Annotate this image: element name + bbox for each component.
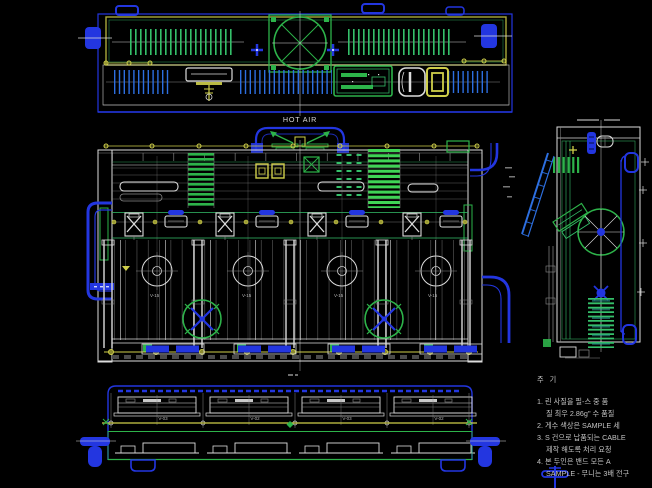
inlet-conveyor — [522, 153, 554, 237]
bay-column — [460, 240, 472, 348]
belt-section — [553, 203, 593, 239]
base-pad — [207, 443, 291, 453]
drive-unit — [587, 132, 613, 154]
note-line: 제작 해도록 처리 요청 — [537, 444, 649, 456]
flow-arrow-icon — [122, 266, 130, 271]
upper-chamber — [112, 149, 468, 208]
circulation-fan-icon — [365, 300, 403, 338]
notes-title: 주 기 — [537, 374, 649, 386]
base-pad — [391, 443, 475, 453]
roller-icon — [136, 252, 178, 290]
bracket-assembly — [403, 213, 421, 240]
hinge-left — [78, 27, 112, 49]
note-line: SAMPLE - 무니는 3배 전구 — [537, 468, 649, 480]
return-duct-left — [88, 203, 114, 299]
ref-tick — [641, 158, 649, 166]
tray-unit — [390, 395, 476, 425]
tray-label: V-03 — [342, 416, 352, 421]
foot-tab — [131, 460, 155, 471]
bracket-assembly — [308, 213, 326, 240]
note-line: 질 최우 2.86g'' 수 품질 — [537, 408, 649, 420]
bay-column — [284, 240, 296, 348]
tray-label: V-02 — [250, 416, 260, 421]
side-duct — [621, 153, 638, 344]
bottom-view: V-03 V-02 V-03 V-02 — [76, 374, 568, 488]
tray-label: V-02 — [434, 416, 444, 421]
heater-stack-side — [594, 255, 608, 348]
base-pad — [115, 443, 199, 453]
ref-tick — [637, 288, 645, 296]
bracket-assembly — [125, 213, 143, 240]
side-fan-icon — [578, 209, 624, 255]
base-pad — [299, 443, 383, 453]
tension-mechanism — [186, 68, 232, 101]
bay-label: V-15 — [428, 293, 438, 298]
notes-block: 주 기 1. 린 사질을 필-스 중 품 질 최우 2.86g'' 수 품질 2… — [537, 374, 649, 480]
tray-unit — [298, 395, 384, 425]
center-mark — [287, 421, 294, 428]
note-line: 1. 린 사질을 필-스 중 품 — [537, 396, 649, 408]
roller-icon — [227, 252, 269, 290]
tray-unit — [206, 395, 292, 425]
roller-icon — [321, 252, 363, 290]
note-line: 3. S 건으로 납품되는 CABLE — [537, 432, 649, 444]
tray-unit — [114, 395, 200, 425]
slot-tray — [165, 210, 187, 227]
bay-label: V-15 — [334, 293, 344, 298]
slot-tray — [440, 210, 462, 227]
anchor-bolt-icon — [76, 437, 116, 467]
note-line: 2. 게수 색상은 SAMPLE 세 — [537, 420, 649, 432]
bracket-assembly — [216, 213, 234, 240]
top-plan-view — [78, 4, 512, 116]
cad-drawing-canvas[interactable]: HOT AIR — [0, 0, 652, 488]
side-section-view — [503, 119, 649, 358]
hot-air-label: HOT AIR — [283, 115, 317, 124]
slot-tray — [346, 210, 368, 227]
front-section-view: V-15 V-15 V-15 V-15 — [88, 140, 509, 371]
slot-tray — [256, 210, 278, 227]
fan-icon — [269, 11, 331, 116]
bay-label: V-15 — [150, 293, 160, 298]
tray-label: V-03 — [158, 416, 168, 421]
note-line: 4. 본 두인은 밴드 모든 A — [537, 456, 649, 468]
heat-exchanger-small — [188, 153, 214, 208]
damper-box — [304, 157, 319, 172]
bay-label: V-15 — [242, 293, 252, 298]
exhaust-duct-right — [470, 143, 509, 343]
mount-tab — [362, 4, 384, 13]
dimension-row — [104, 144, 479, 148]
bay-column — [376, 240, 388, 348]
roller-icon — [415, 252, 457, 290]
bay-column — [192, 240, 204, 348]
foot-tab — [441, 460, 465, 471]
control-panel — [334, 66, 392, 96]
